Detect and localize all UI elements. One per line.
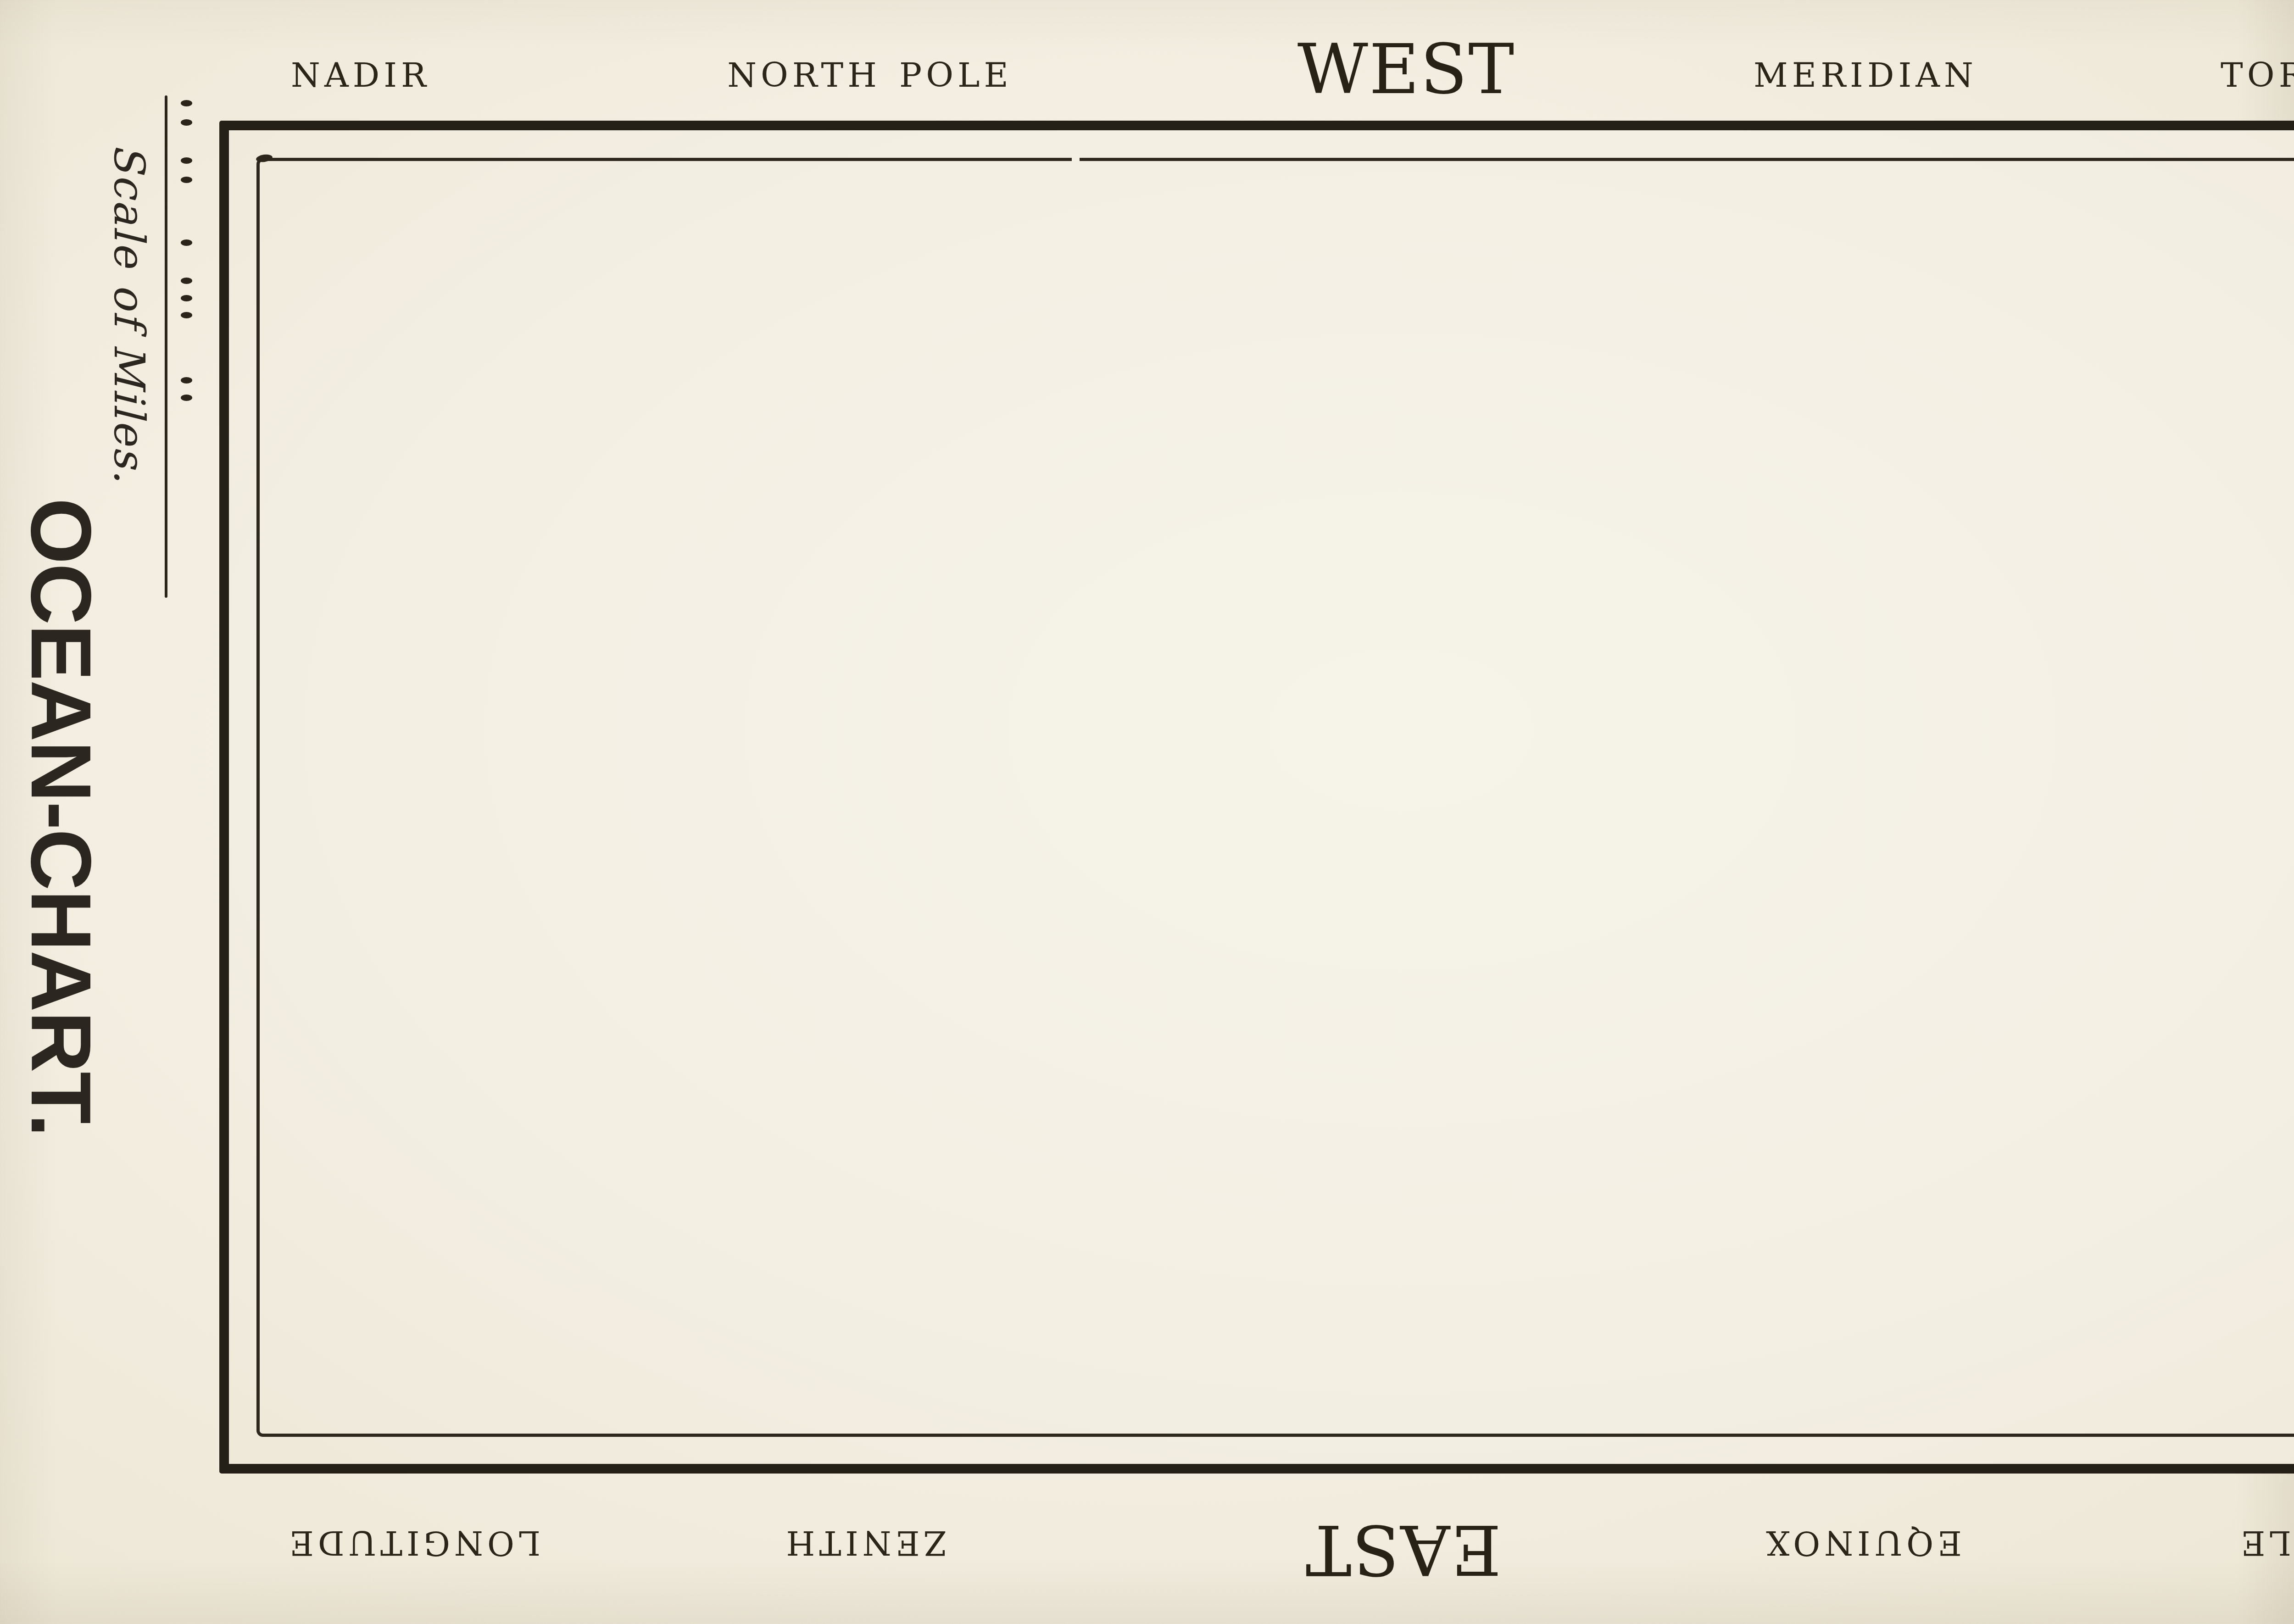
edge-label-meridian: MERIDIAN [1754, 58, 1977, 92]
edge-label-longitude: LONGITUDE [285, 1526, 540, 1559]
edge-label-east: EAST [1305, 1515, 1502, 1584]
edge-label-nadir: NADIR [291, 58, 430, 92]
scale-dot [181, 157, 192, 164]
scale-bar-line [165, 95, 167, 598]
scale-dot [181, 295, 192, 301]
edge-label-north-pole: NORTH POLE [727, 58, 1013, 92]
scale-dot [181, 377, 192, 384]
ocean-chart-page: { "artwork": { "left_margin": { "title":… [0, 0, 2294, 1624]
scale-dot [181, 177, 192, 183]
edge-label-torrid-zone: TORRID ZONE [2221, 58, 2294, 92]
chart-title: OCEAN-CHART. [18, 498, 104, 1136]
scale-dot [181, 395, 192, 401]
inner-line-gap [1072, 156, 1080, 162]
edge-label-equinox: EQUINOX [1762, 1526, 1962, 1559]
edge-label-zenith: ZENITH [782, 1526, 947, 1559]
edge-label-west: WEST [1297, 35, 1515, 104]
scale-dots [181, 0, 192, 1624]
scale-dot [181, 100, 192, 106]
scale-dot [181, 312, 192, 318]
scale-dot [181, 239, 192, 246]
scale-dot [181, 119, 192, 126]
map-frame-inner [256, 158, 2294, 1437]
scale-of-miles-caption: Scale of Miles. [108, 143, 150, 485]
edge-label-south-pole: SOUTH POLE [2237, 1526, 2294, 1559]
scale-dot [181, 278, 192, 284]
